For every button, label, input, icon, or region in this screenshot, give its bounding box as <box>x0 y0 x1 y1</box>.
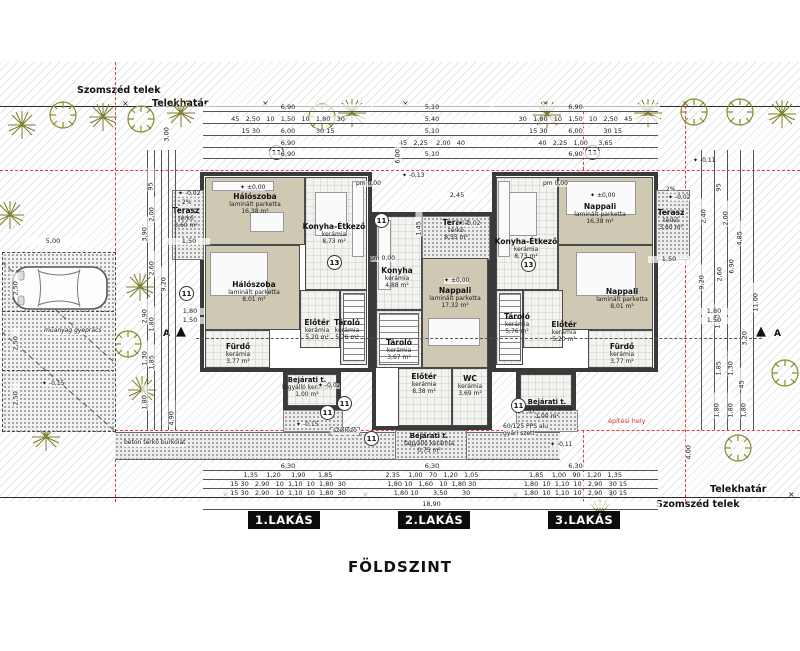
building-limit-line <box>0 170 800 171</box>
label-vent: szellőző <box>330 427 360 436</box>
room-hall-u1 <box>300 290 340 348</box>
dim-pair: 1,50 <box>700 317 728 324</box>
dining-table <box>315 192 347 236</box>
dim-row: 1,80 10 1,10 10 2,90 30 15 <box>491 490 660 497</box>
dim-line <box>203 158 658 159</box>
dim-row: 6,30 <box>491 463 660 470</box>
room-living-u2 <box>422 258 488 368</box>
floor-plan-canvas: × × × × × × × × × × Szomszéd telek Telek… <box>0 0 800 651</box>
dim-line <box>203 135 658 136</box>
dim-row: 6,90 <box>491 104 660 111</box>
level-mark: ✦ -0,15 <box>296 422 318 428</box>
room-wc-u2 <box>452 368 488 426</box>
dim-row: 2,35 1,00 70 1,20 1,05 <box>371 472 493 479</box>
page-title: FÖLDSZINT <box>300 558 500 576</box>
dim-right: 2,40 <box>700 199 707 225</box>
slope-mark: 2% <box>182 200 192 206</box>
tag-11: 11 <box>337 396 352 411</box>
dim-right: 1,80 <box>727 393 734 419</box>
level-mark: ✦ ±0,00 <box>590 193 615 199</box>
tag-13: 13 <box>521 257 536 272</box>
tree-icon <box>766 98 798 130</box>
dim-left: 1,80 <box>148 307 155 333</box>
tag-11: 11 <box>511 398 526 413</box>
dim-row: 5,40 <box>371 116 493 123</box>
apartment-2-label: 2.LAKÁS <box>398 511 470 529</box>
dim-line <box>203 111 658 112</box>
dim-row: 30 1,80 10 1,50 10 2,50 45 <box>491 116 660 123</box>
dim-parking-stall: 2,50 <box>12 273 19 297</box>
dim-right: 1,85 <box>715 351 722 377</box>
bottom-boundary-line <box>0 497 800 498</box>
dim-row: 15 30 2,90 10 1,10 10 1,80 30 <box>203 481 373 488</box>
tree-icon <box>6 109 38 141</box>
tree-icon <box>769 357 800 389</box>
tree-icon <box>632 97 664 129</box>
dim-row: 1,80 10 1,60 10 1,80 30 <box>371 481 493 488</box>
kitchen-counter <box>352 181 364 257</box>
dim-row: 5,10 <box>371 104 493 111</box>
dim-line <box>727 150 728 430</box>
dim-left: 95 <box>147 168 154 192</box>
dim-parking-stall: 2,50 <box>12 328 19 352</box>
dim-right: 3,20 <box>741 321 748 347</box>
tree-icon <box>0 199 26 231</box>
dim-right: 6,90 <box>728 249 735 275</box>
dim-line <box>203 123 658 124</box>
tree-icon <box>724 96 756 128</box>
level-mark: ✦ -0,13 <box>402 173 424 179</box>
dim-right: 1,80 <box>713 393 720 419</box>
level-mark: ✦ ±0,00 <box>240 185 265 191</box>
level-mark: ✦ -0,11 <box>693 158 715 164</box>
dim-right: 2,00 <box>722 201 729 227</box>
tree-icon <box>678 96 710 128</box>
dim-right: 11,00 <box>752 283 759 313</box>
dim-row: 6,90 <box>203 140 373 147</box>
tag-11: 11 <box>374 213 389 228</box>
dim-right: 95 <box>715 171 722 193</box>
tag-11: 11 <box>179 286 194 301</box>
dim-right: 1,80 <box>740 393 747 419</box>
level-mark: pm 0,00 <box>356 181 381 187</box>
section-marker-icon: ▲ <box>756 324 766 339</box>
dim-row: 6,30 <box>371 463 493 470</box>
level-mark: pm 0,00 <box>370 256 395 262</box>
level-mark: ✦ -0,02 <box>458 221 480 227</box>
tag-13: 13 <box>327 255 342 270</box>
dim-terrace: 1,50 <box>168 238 210 245</box>
dim-line <box>203 147 658 148</box>
dim-left: 2,00 <box>148 197 155 223</box>
dim-right: 45 <box>738 368 745 390</box>
dim-row: 1,35 1,20 1,90 1,85 <box>203 472 373 479</box>
dim-line <box>168 150 169 430</box>
dim-left: 3,90 <box>141 217 148 243</box>
dim-setback: 6,00 <box>394 139 401 165</box>
dim-row: 6,90 <box>203 104 373 111</box>
room-bath-u1 <box>205 330 270 368</box>
tree-icon <box>112 328 144 360</box>
level-mark: pm 0,00 <box>543 181 568 187</box>
dim-left: 1,85 <box>148 345 155 371</box>
dim-left: 9,20 <box>160 267 167 293</box>
label-concrete-paving: beton térkő burkolat <box>124 440 186 447</box>
dim-line <box>203 509 658 510</box>
apartment-3-label: 3.LAKÁS <box>548 511 620 529</box>
level-mark: ✦ -0,11 <box>550 442 572 448</box>
room-hall-u3 <box>523 290 563 348</box>
dim-row: 45 2,25 2,00 40 <box>371 140 493 147</box>
tree-icon <box>125 103 157 135</box>
room-hall-u2 <box>398 368 452 426</box>
section-line-a <box>196 338 762 339</box>
bed <box>576 252 636 296</box>
bed <box>210 252 268 296</box>
dim-row: 6,90 <box>203 151 373 158</box>
dim-setback: 3,00 <box>163 117 170 143</box>
stairs-u2 <box>379 313 419 365</box>
dim-left: 1,80 <box>141 385 148 411</box>
dim-row: 15 30 6,00 30 15 <box>203 128 373 135</box>
dim-right: 2,60 <box>716 257 723 283</box>
dim-row: 5,10 <box>371 128 493 135</box>
tag-11: 11 <box>364 431 379 446</box>
dim-right: 4,85 <box>736 221 743 247</box>
level-mark: ✦ -0,02 <box>668 195 690 201</box>
tree-icon <box>722 432 754 464</box>
level-mark: ✦ -0,02 <box>178 191 200 197</box>
label-plot-border-bottom: Telekhatár <box>710 485 767 495</box>
label-building-zone: építési hely <box>608 418 646 425</box>
tag-11: 11 <box>320 405 335 420</box>
dim-line <box>154 150 155 430</box>
level-mark: ✦ -0,02 <box>318 383 340 389</box>
entry-porch-2 <box>395 430 467 460</box>
slope-mark: 2% <box>666 187 676 193</box>
stairs-u3 <box>499 293 521 361</box>
tree-icon <box>47 99 79 131</box>
dim-pair: 1,80 <box>700 308 728 315</box>
boundary-x-mark: × <box>788 491 795 499</box>
dim-parking-width: 5,00 <box>22 238 84 245</box>
dim-setback: 4,00 <box>685 435 692 461</box>
dim-terrace-depth: 1,45 <box>415 211 422 237</box>
dim-terrace-width: 2,45 <box>430 192 484 199</box>
dim-row: 15 30 6,00 30 15 <box>491 128 660 135</box>
dim-row: 6,30 <box>203 463 373 470</box>
section-marker-label: A <box>774 329 781 339</box>
room-bath-u3 <box>588 330 653 368</box>
dim-row: 5,10 <box>371 151 493 158</box>
label-door-type-2: gyári szett <box>503 431 535 438</box>
dim-row: 45 2,50 10 1,50 10 1,80 30 <box>203 116 373 123</box>
dim-row: 1,80 10 3,50 30 <box>371 490 493 497</box>
level-mark: ✦ -0,15 <box>42 381 64 387</box>
tree-icon <box>336 97 368 129</box>
dim-pair: 1,50 <box>176 317 204 324</box>
dim-line <box>175 150 176 430</box>
room-entry-u1 <box>287 374 337 406</box>
dim-right: 9,20 <box>698 265 705 291</box>
kitchen-counter <box>498 181 510 257</box>
dim-total-width: 18,90 <box>203 501 660 508</box>
label-grass-grid: műanyag gyeprács <box>44 328 102 335</box>
dim-row: 15 30 2,90 10 1,10 10 1,80 30 <box>203 490 373 497</box>
stairs-u1 <box>343 293 365 361</box>
section-marker-icon: ▲ <box>176 324 186 339</box>
label-neighbor-plot-top: Szomszéd telek <box>77 86 161 96</box>
car-icon <box>10 260 110 316</box>
dim-parking-stall: 2,50 <box>12 383 19 407</box>
table <box>250 212 284 232</box>
dim-right: 1,30 <box>727 351 734 377</box>
room-entry-u3 <box>520 374 572 406</box>
dim-row: 1,80 10 1,10 10 2,90 30 15 <box>491 481 660 488</box>
dim-left: 2,60 <box>148 251 155 277</box>
apartment-1-label: 1.LAKÁS <box>248 511 320 529</box>
level-mark: ✦ ±0,00 <box>444 278 469 284</box>
dim-terrace: 1,50 <box>648 256 690 263</box>
dim-row: 1,85 1,00 90 1,20 1,35 <box>491 472 660 479</box>
dim-pair: 1,80 <box>176 308 204 315</box>
dim-left: 4,90 <box>168 401 175 427</box>
dim-row: 40 2,25 1,00 3,65 <box>491 140 660 147</box>
label-neighbor-plot-bottom: Szomszéd telek <box>656 500 740 510</box>
sofa <box>428 318 480 346</box>
dim-row: 6,90 <box>491 151 660 158</box>
tree-icon <box>87 101 119 133</box>
